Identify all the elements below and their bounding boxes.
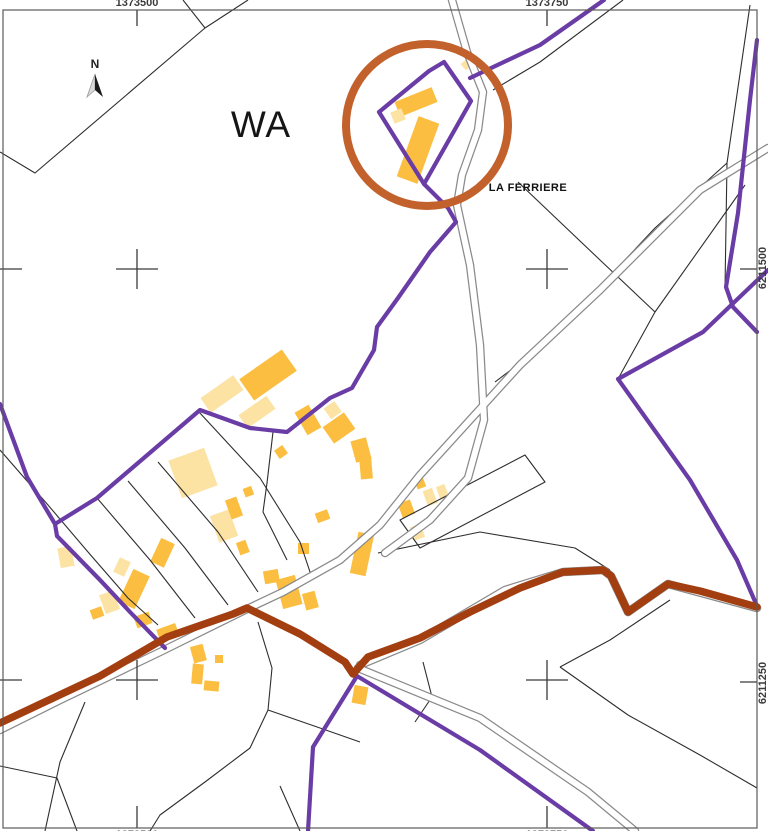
zone-boundary-purple: [0, 0, 768, 831]
cadastral-map-sheet: N WA LA FERRIERE 1373500 1373750 1373500…: [0, 0, 768, 831]
cadastral-map: N WA LA FERRIERE 1373500 1373750 1373500…: [0, 0, 768, 831]
coord-label-top-east: 1373750: [526, 0, 569, 9]
buildings: [57, 58, 473, 705]
coord-label-right-north: 6211500: [757, 247, 768, 289]
grid-crosses: [0, 10, 757, 828]
road-network: [0, 0, 768, 831]
coord-label-right-south: 6211250: [757, 662, 768, 704]
zone-label-wa: WA: [231, 104, 291, 145]
place-label-la-ferriere: LA FERRIERE: [489, 182, 567, 194]
coord-label-top-west: 1373500: [116, 0, 159, 9]
north-arrow: N: [87, 57, 103, 97]
north-label: N: [91, 57, 100, 71]
map-frame: [3, 10, 757, 828]
